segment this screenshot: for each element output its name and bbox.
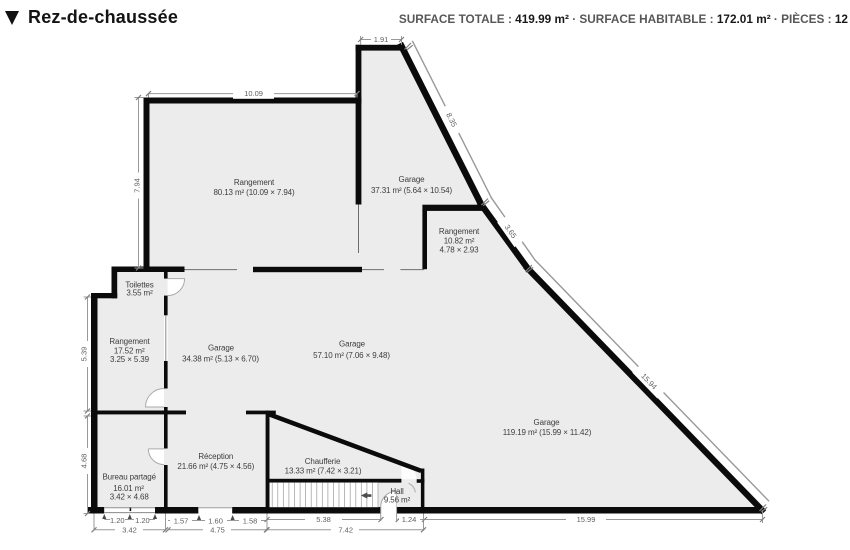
svg-text:10.09: 10.09	[244, 89, 263, 98]
svg-text:Rangement: Rangement	[234, 178, 275, 187]
svg-text:1.57: 1.57	[174, 517, 189, 526]
svg-text:3.42 × 4.68: 3.42 × 4.68	[110, 493, 150, 502]
svg-text:37.31 m² (5.64 × 10.54): 37.31 m² (5.64 × 10.54)	[371, 186, 453, 195]
svg-text:7.94: 7.94	[132, 178, 141, 193]
svg-text:Garage: Garage	[534, 418, 561, 427]
svg-text:1.60: 1.60	[208, 517, 223, 526]
svg-text:3.55 m²: 3.55 m²	[126, 289, 153, 298]
svg-text:7.42: 7.42	[338, 525, 353, 534]
svg-text:Garage: Garage	[339, 340, 366, 349]
svg-text:Bureau partagé: Bureau partagé	[102, 473, 156, 482]
svg-text:Rangement: Rangement	[439, 227, 480, 236]
svg-text:34.38 m² (5.13 × 6.70): 34.38 m² (5.13 × 6.70)	[182, 355, 259, 364]
svg-text:5.39: 5.39	[79, 347, 88, 362]
svg-text:Réception: Réception	[198, 452, 233, 461]
svg-text:5.38: 5.38	[316, 515, 331, 524]
svg-text:4.75: 4.75	[210, 525, 225, 534]
svg-text:3.25 × 5.39: 3.25 × 5.39	[110, 355, 150, 364]
svg-text:4.78 × 2.93: 4.78 × 2.93	[440, 246, 480, 255]
svg-text:10.82 m²: 10.82 m²	[444, 236, 475, 245]
svg-text:Rangement: Rangement	[109, 337, 150, 346]
svg-text:1.91: 1.91	[374, 35, 389, 44]
svg-text:13.33 m² (7.42 × 3.21): 13.33 m² (7.42 × 3.21)	[285, 467, 362, 476]
svg-text:21.66 m² (4.75 × 4.56): 21.66 m² (4.75 × 4.56)	[177, 462, 254, 471]
svg-text:80.13 m² (10.09 × 7.94): 80.13 m² (10.09 × 7.94)	[213, 188, 295, 197]
svg-text:1.24: 1.24	[402, 515, 417, 524]
svg-text:3.42: 3.42	[122, 525, 137, 534]
svg-text:119.19 m² (15.99 × 11.42): 119.19 m² (15.99 × 11.42)	[503, 428, 592, 437]
svg-text:57.10 m² (7.06 × 9.48): 57.10 m² (7.06 × 9.48)	[313, 351, 390, 360]
svg-text:1.58: 1.58	[243, 517, 258, 526]
svg-text:1.20: 1.20	[110, 516, 125, 525]
svg-text:Garage: Garage	[399, 175, 426, 184]
svg-text:15.99: 15.99	[577, 515, 596, 524]
svg-text:16.01 m²: 16.01 m²	[113, 484, 144, 493]
svg-text:Chaufferie: Chaufferie	[305, 457, 341, 466]
svg-text:Garage: Garage	[208, 344, 235, 353]
svg-text:1.20: 1.20	[135, 516, 150, 525]
svg-text:9.56 m²: 9.56 m²	[384, 496, 411, 505]
svg-text:4.68: 4.68	[79, 454, 88, 469]
